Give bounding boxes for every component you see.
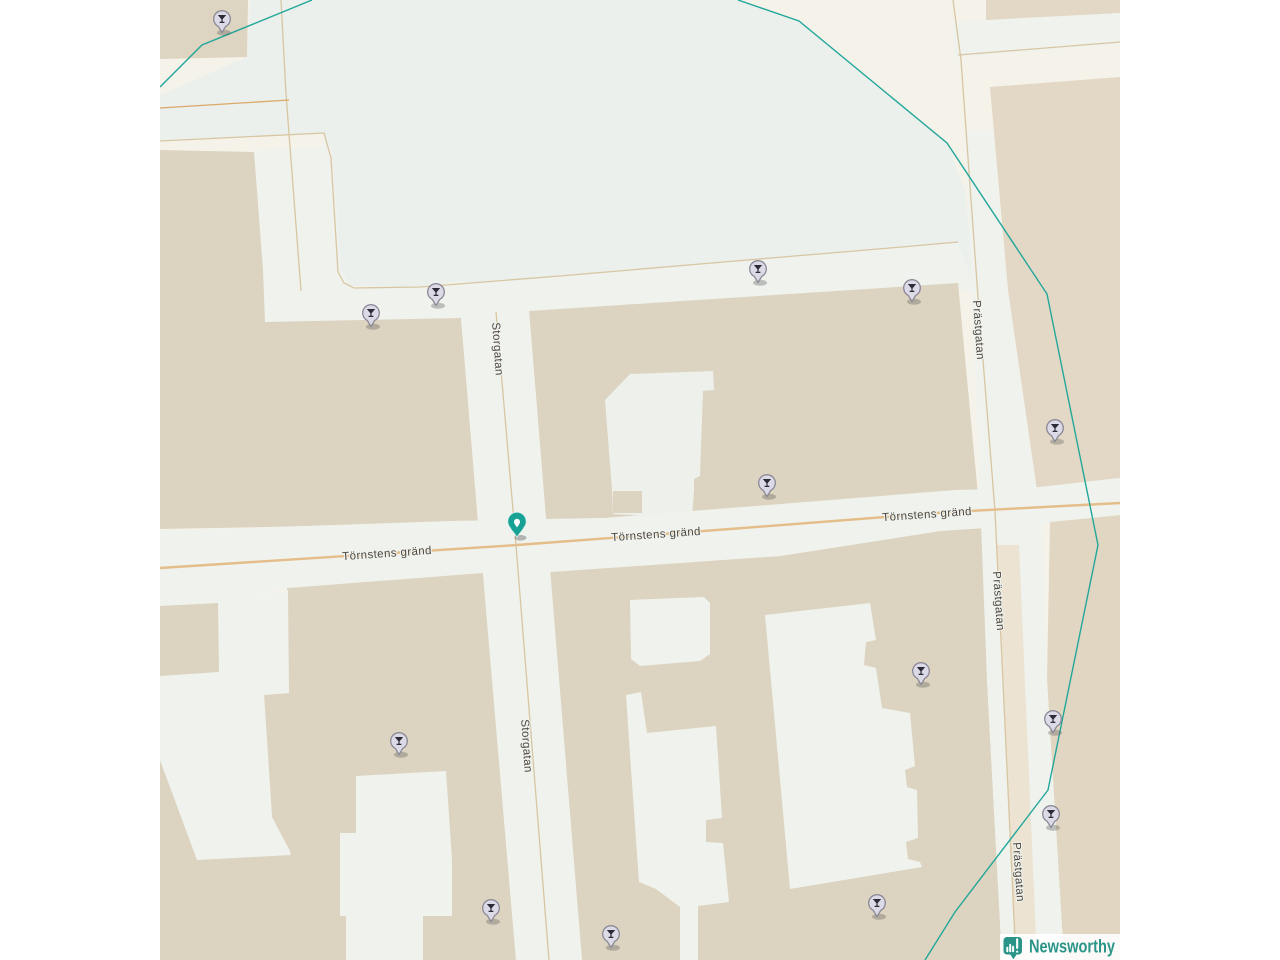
svg-text:Newsworthy: Newsworthy	[1029, 936, 1116, 957]
